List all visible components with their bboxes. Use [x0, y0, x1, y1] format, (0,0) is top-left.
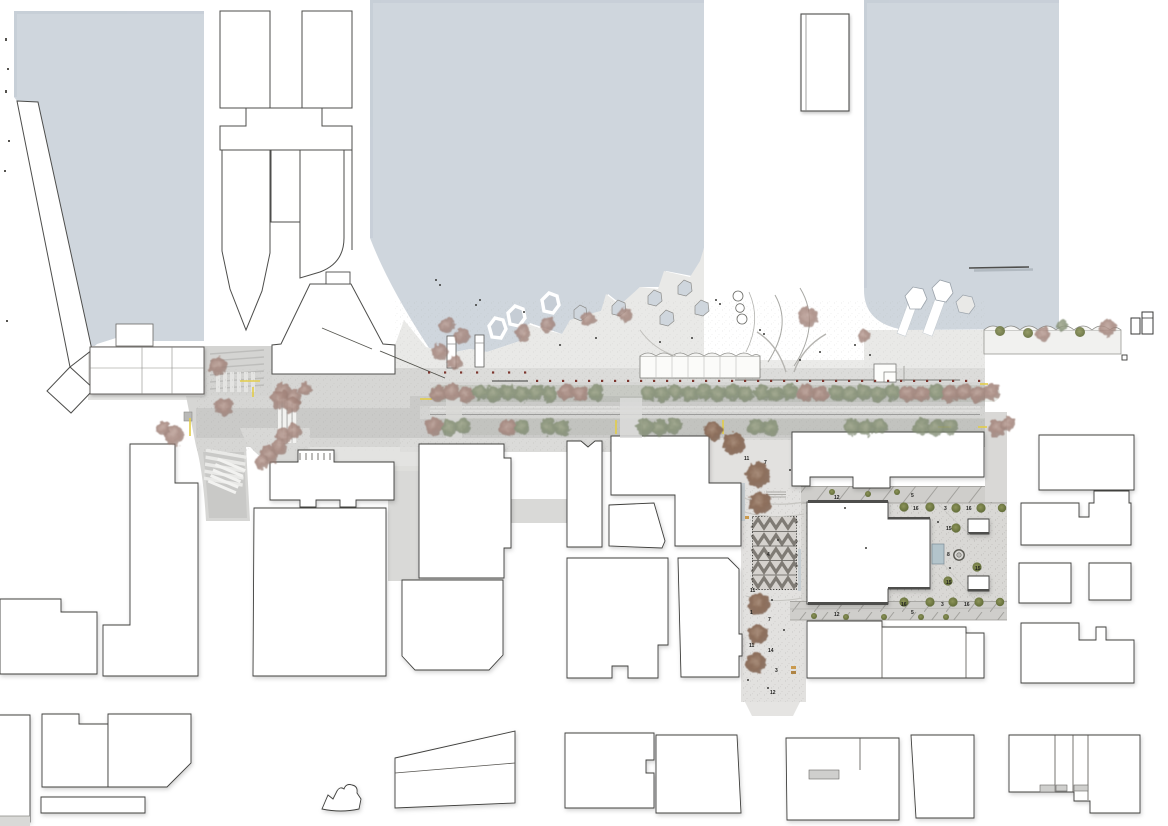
svg-text:7: 7 — [768, 617, 771, 623]
svg-text:12: 12 — [834, 495, 840, 501]
svg-text:12: 12 — [834, 612, 840, 618]
svg-text:16: 16 — [913, 506, 919, 512]
svg-text:14: 14 — [768, 648, 774, 654]
svg-text:7: 7 — [764, 460, 767, 466]
svg-text:1: 1 — [750, 610, 753, 616]
svg-text:3: 3 — [775, 668, 778, 674]
svg-text:16: 16 — [964, 602, 970, 608]
svg-text:8: 8 — [947, 552, 950, 558]
svg-text:3: 3 — [941, 602, 944, 608]
svg-text:11: 11 — [749, 643, 755, 649]
svg-text:15: 15 — [946, 580, 952, 586]
svg-text:16: 16 — [901, 602, 907, 608]
svg-text:4: 4 — [767, 552, 770, 558]
svg-text:16: 16 — [966, 506, 972, 512]
svg-text:15: 15 — [975, 566, 981, 572]
svg-text:11: 11 — [744, 456, 750, 462]
svg-text:15: 15 — [946, 526, 952, 532]
svg-text:3: 3 — [944, 506, 947, 512]
svg-text:5: 5 — [911, 493, 914, 499]
svg-text:5: 5 — [911, 610, 914, 616]
svg-text:11: 11 — [750, 588, 756, 594]
svg-text:12: 12 — [770, 690, 776, 696]
